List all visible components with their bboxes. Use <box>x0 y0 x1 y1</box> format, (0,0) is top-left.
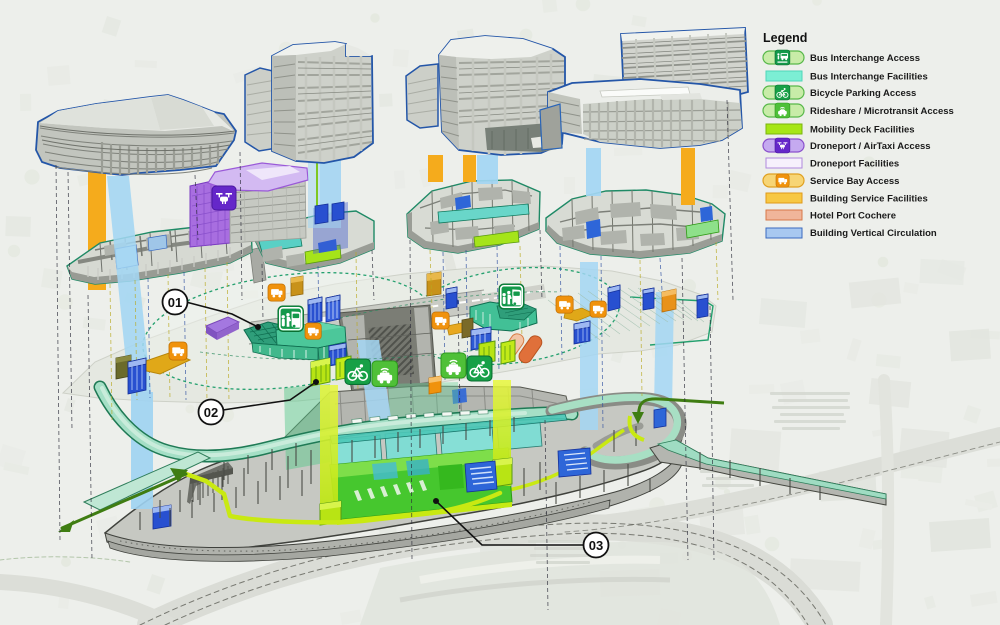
svg-text:Mobility Deck Facilities: Mobility Deck Facilities <box>810 125 915 136</box>
svg-text:Rideshare / Microtransit Acces: Rideshare / Microtransit Access <box>810 106 954 117</box>
svg-text:Droneport Facilities: Droneport Facilities <box>810 159 899 170</box>
svg-text:Building Service Facilities: Building Service Facilities <box>810 194 928 205</box>
svg-text:Hotel Port Cochere: Hotel Port Cochere <box>810 211 896 222</box>
svg-text:Service Bay Access: Service Bay Access <box>810 176 899 187</box>
svg-text:Legend: Legend <box>763 31 807 45</box>
svg-text:Bicycle Parking Access: Bicycle Parking Access <box>810 88 916 99</box>
svg-text:01: 01 <box>168 295 182 310</box>
svg-text:02: 02 <box>204 405 218 420</box>
svg-text:Bus Interchange Facilities: Bus Interchange Facilities <box>810 72 928 83</box>
svg-text:03: 03 <box>589 538 603 553</box>
svg-text:Bus Interchange Access: Bus Interchange Access <box>810 53 920 64</box>
svg-text:Building Vertical Circulation: Building Vertical Circulation <box>810 228 937 239</box>
svg-text:Droneport / AirTaxi Access: Droneport / AirTaxi Access <box>810 141 931 152</box>
